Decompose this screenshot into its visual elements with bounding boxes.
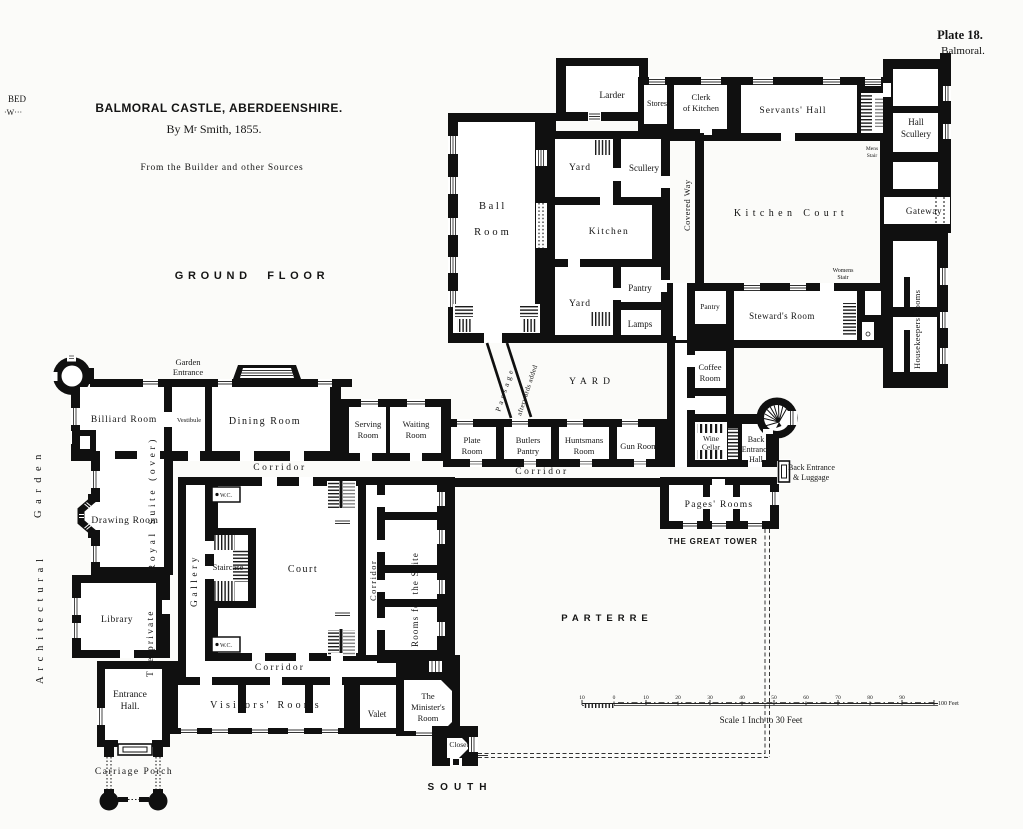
svg-text:THE GREAT TOWER: THE GREAT TOWER <box>668 537 757 546</box>
svg-text:Visitors' Rooms: Visitors' Rooms <box>210 700 322 711</box>
svg-text:BALMORAL CASTLE, ABERDEENSHIRE: BALMORAL CASTLE, ABERDEENSHIRE. <box>95 101 342 115</box>
svg-text:Court: Court <box>288 564 318 575</box>
svg-text:Housekeepers Rooms: Housekeepers Rooms <box>912 290 922 369</box>
svg-text:20: 20 <box>675 695 681 701</box>
svg-text:Pages' Rooms: Pages' Rooms <box>685 500 754 510</box>
svg-text:Stair: Stair <box>867 153 878 159</box>
svg-text:Room: Room <box>474 227 512 238</box>
svg-text:Entrance: Entrance <box>173 367 203 377</box>
svg-text:Covered Way: Covered Way <box>682 179 692 231</box>
svg-text:Larder: Larder <box>599 91 625 101</box>
svg-text:Closet: Closet <box>449 740 469 749</box>
svg-text:GROUND FLOOR: GROUND FLOOR <box>175 270 330 282</box>
svg-text:W.C.: W.C. <box>220 493 233 499</box>
svg-text:Hall.: Hall. <box>121 702 140 712</box>
svg-text:Scullery: Scullery <box>629 163 659 173</box>
svg-text:Scullery: Scullery <box>901 129 931 139</box>
svg-text:Pantry: Pantry <box>517 446 540 456</box>
svg-text:Corridor: Corridor <box>253 463 307 473</box>
svg-text:Cellar: Cellar <box>702 443 721 452</box>
svg-text:SOUTH: SOUTH <box>428 782 493 793</box>
svg-text:Carriage Porch: Carriage Porch <box>95 767 173 777</box>
svg-text:50: 50 <box>771 695 777 701</box>
svg-text:Corridor: Corridor <box>368 560 378 601</box>
svg-text:Steward's Room: Steward's Room <box>749 311 815 321</box>
svg-text:W.C.: W.C. <box>220 643 233 649</box>
svg-text:Waiting: Waiting <box>403 419 430 429</box>
svg-text:Staircase: Staircase <box>213 562 244 572</box>
svg-text:of Kitchen: of Kitchen <box>683 103 720 113</box>
svg-text:Corridor: Corridor <box>515 467 569 477</box>
svg-text:Womens: Womens <box>833 268 855 274</box>
svg-text:Lamps: Lamps <box>628 319 653 329</box>
svg-text:By Mr Smith, 1855.: By Mr Smith, 1855. <box>166 122 261 136</box>
svg-text:70: 70 <box>835 695 841 701</box>
svg-text:Clerk: Clerk <box>692 92 712 102</box>
svg-text:10: 10 <box>643 695 649 701</box>
svg-text:Gallery: Gallery <box>190 554 200 607</box>
svg-text:YARD: YARD <box>569 377 615 387</box>
svg-text:Stair: Stair <box>837 275 848 281</box>
svg-text:Room: Room <box>406 430 427 440</box>
svg-text:Billiard Room: Billiard Room <box>91 415 157 425</box>
svg-text:Pantry: Pantry <box>628 283 652 293</box>
svg-text:Rooms for the Suite: Rooms for the Suite <box>410 552 420 647</box>
svg-text:Back: Back <box>748 435 764 444</box>
svg-text:Gun Room: Gun Room <box>620 441 658 451</box>
svg-text:Hall: Hall <box>908 117 924 127</box>
svg-text:10: 10 <box>579 695 585 701</box>
svg-text:Gateway: Gateway <box>906 206 942 216</box>
svg-text:Back Entrance: Back Entrance <box>788 463 835 472</box>
svg-text:BED: BED <box>8 94 27 104</box>
svg-text:60: 60 <box>803 695 809 701</box>
svg-text:The: The <box>421 691 434 701</box>
svg-text:Room: Room <box>462 446 483 456</box>
svg-text:From the Builder and other Sou: From the Builder and other Sources <box>140 163 303 173</box>
svg-text:40: 40 <box>739 695 745 701</box>
svg-text:Vestibule: Vestibule <box>177 417 201 424</box>
svg-text:Huntsmans: Huntsmans <box>565 435 603 445</box>
svg-text:30: 30 <box>707 695 713 701</box>
svg-text:Architectural: Architectural <box>35 553 46 684</box>
svg-text:Garden: Garden <box>33 448 44 518</box>
svg-text:Garden: Garden <box>175 357 201 367</box>
svg-text:Room: Room <box>418 713 439 723</box>
svg-text:& Luggage: & Luggage <box>793 473 830 482</box>
svg-text:Servants' Hall: Servants' Hall <box>759 106 826 116</box>
svg-text:Mens: Mens <box>866 146 878 152</box>
svg-text:Balmoral.: Balmoral. <box>941 45 985 57</box>
svg-text:Library: Library <box>101 615 133 625</box>
svg-text:Room: Room <box>700 373 721 383</box>
svg-text:Valet: Valet <box>368 709 387 719</box>
svg-text:Room: Room <box>358 430 379 440</box>
svg-text:·W···: ·W··· <box>4 108 22 117</box>
svg-text:Entrance: Entrance <box>113 690 147 700</box>
svg-text:Coffee: Coffee <box>699 362 722 372</box>
svg-text:Corridor: Corridor <box>255 663 305 673</box>
svg-text:Ball: Ball <box>479 201 507 212</box>
svg-text:Plate: Plate <box>464 435 481 445</box>
svg-text:Yard: Yard <box>569 299 591 309</box>
svg-text:Pantry: Pantry <box>700 302 720 311</box>
svg-text:Plate 18.: Plate 18. <box>937 28 983 42</box>
svg-text:Kitchen: Kitchen <box>589 227 630 237</box>
svg-text:Hall: Hall <box>749 455 764 464</box>
svg-text:100 Feet: 100 Feet <box>938 701 959 707</box>
svg-text:Kitchen Court: Kitchen Court <box>734 208 848 219</box>
svg-text:90: 90 <box>899 695 905 701</box>
svg-text:Minister's: Minister's <box>411 702 445 712</box>
svg-text:PARTERRE: PARTERRE <box>561 613 653 624</box>
svg-text:0: 0 <box>613 695 616 701</box>
svg-text:Scale 1 Inch to 30 Feet: Scale 1 Inch to 30 Feet <box>720 715 803 725</box>
svg-text:Butlers: Butlers <box>516 435 541 445</box>
svg-text:Yard: Yard <box>569 163 591 173</box>
svg-text:Entrance: Entrance <box>742 445 771 454</box>
svg-text:Stores: Stores <box>647 99 667 108</box>
svg-text:80: 80 <box>867 695 873 701</box>
svg-text:Royal Suite (over): Royal Suite (over) <box>147 436 158 571</box>
svg-text:Room: Room <box>574 446 595 456</box>
svg-text:Serving: Serving <box>355 419 382 429</box>
svg-text:The private: The private <box>146 609 156 677</box>
svg-text:Dining Room: Dining Room <box>229 416 301 427</box>
